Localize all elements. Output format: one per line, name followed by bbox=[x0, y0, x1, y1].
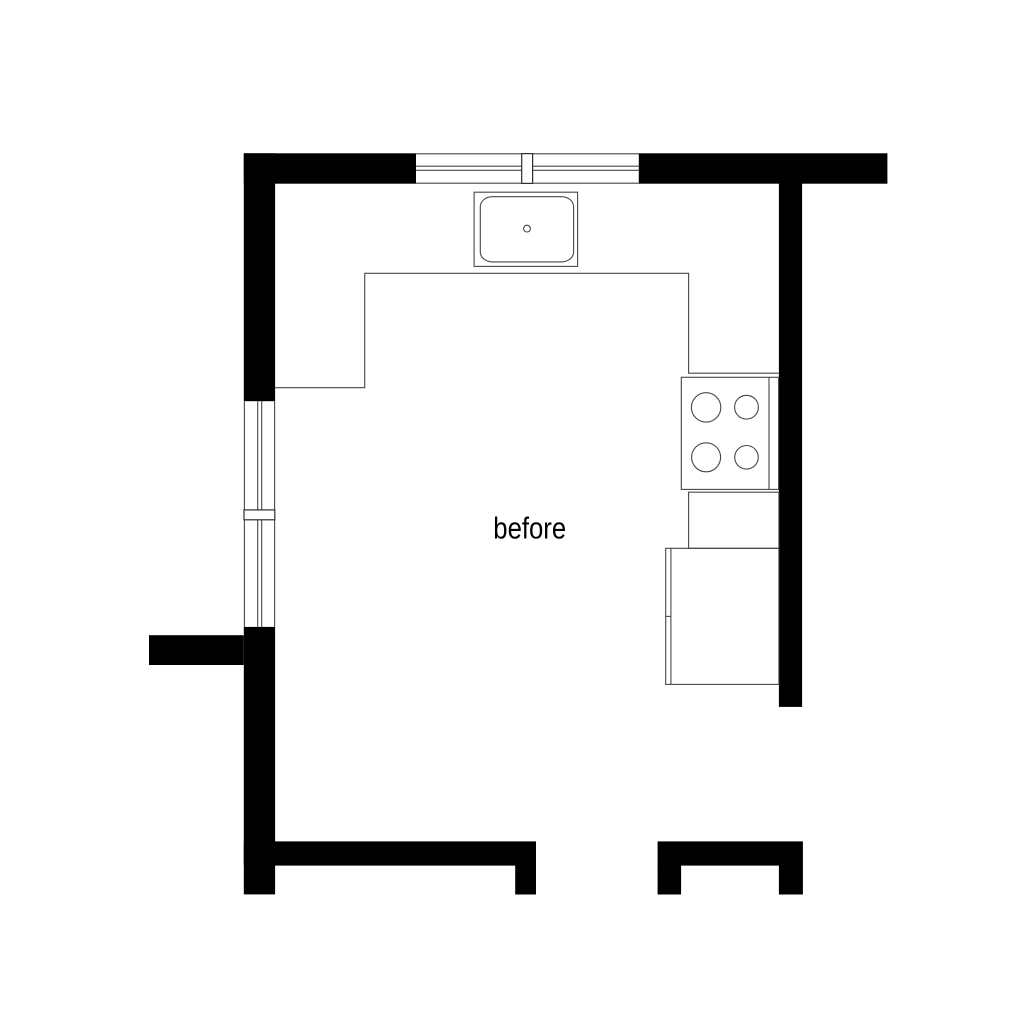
svg-text:before: before bbox=[493, 510, 566, 545]
